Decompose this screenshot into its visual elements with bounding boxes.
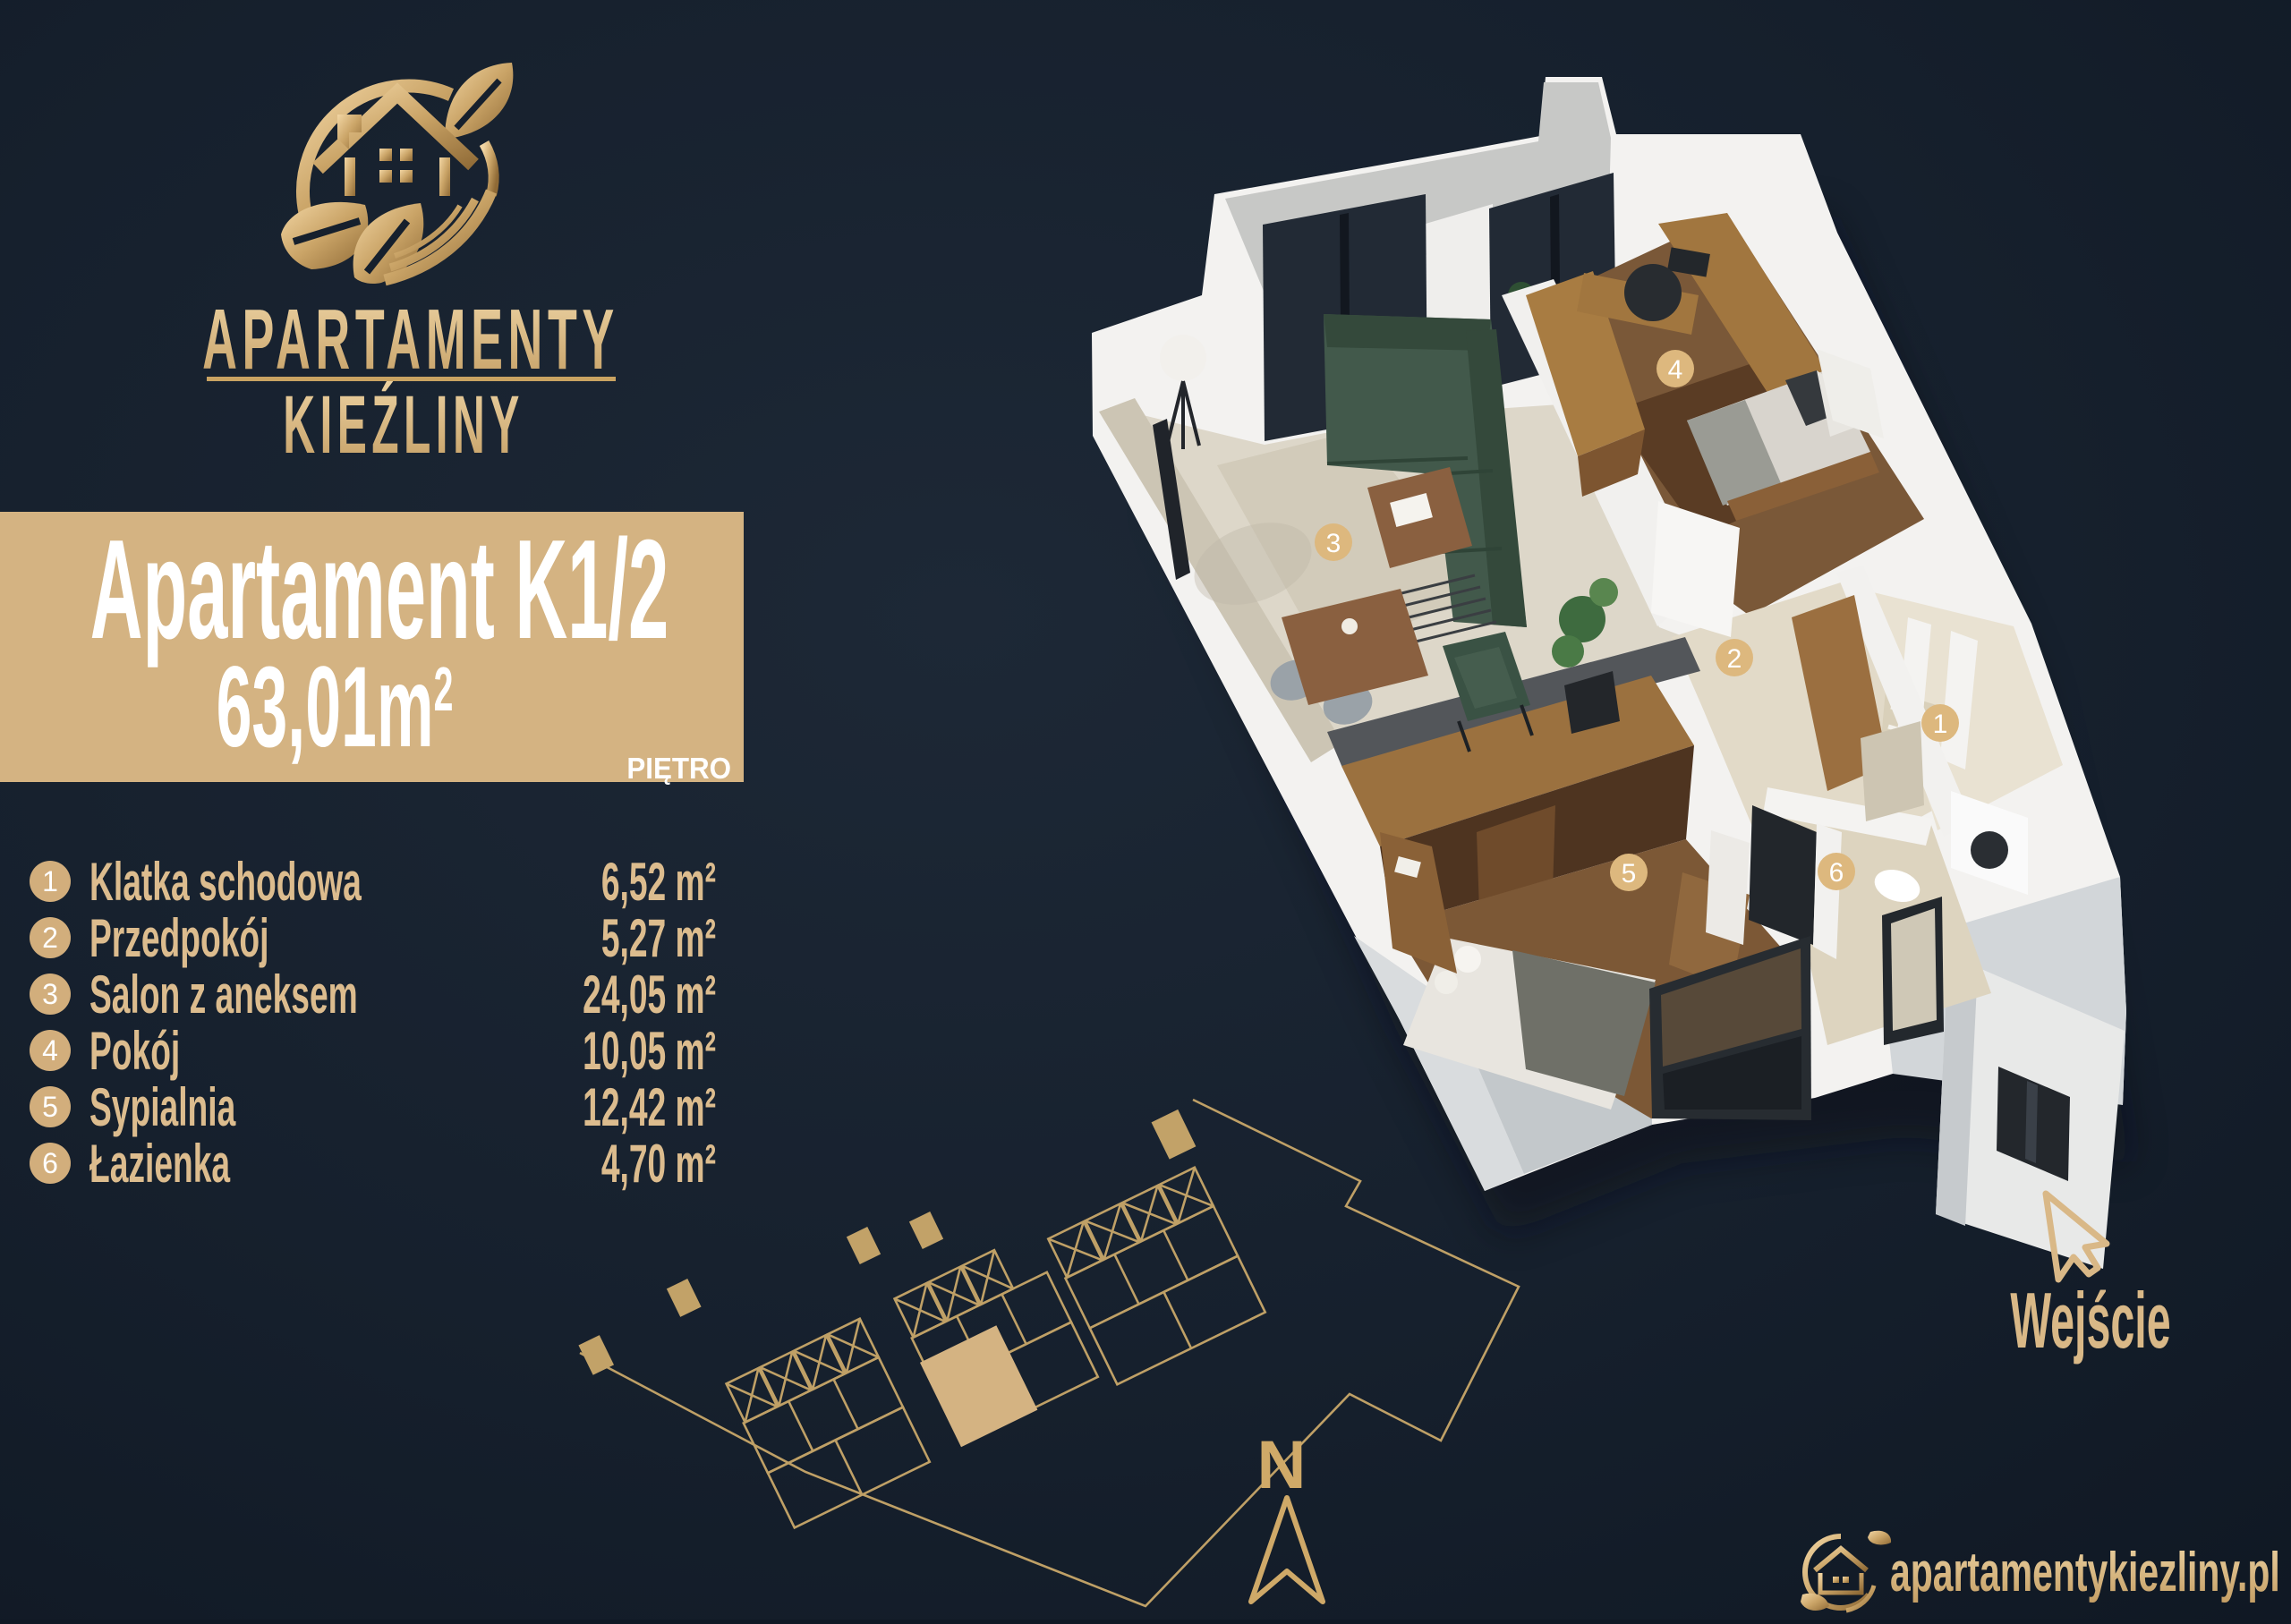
svg-text:N: N	[1257, 1427, 1307, 1503]
svg-text:5: 5	[1622, 859, 1637, 889]
svg-text:Wejście: Wejście	[2010, 1278, 2170, 1365]
svg-text:apartamentykiezliny.pl: apartamentykiezliny.pl	[1890, 1542, 2280, 1604]
svg-text:1: 1	[42, 865, 58, 897]
svg-text:5,27 m²: 5,27 m²	[601, 908, 716, 968]
svg-text:6: 6	[42, 1147, 58, 1179]
svg-text:Salon z aneksem: Salon z aneksem	[89, 965, 358, 1025]
svg-text:24,05 m²: 24,05 m²	[583, 965, 716, 1025]
svg-text:4: 4	[42, 1034, 58, 1067]
svg-text:PIĘTRO: PIĘTRO	[626, 752, 731, 785]
svg-text:Sypialnia: Sypialnia	[89, 1077, 236, 1137]
svg-text:2: 2	[1727, 644, 1742, 674]
svg-text:3: 3	[42, 978, 58, 1010]
svg-text:APARTAMENTY: APARTAMENTY	[202, 293, 619, 387]
svg-text:Klatka schodowa: Klatka schodowa	[89, 852, 362, 912]
svg-text:5: 5	[42, 1091, 58, 1123]
svg-text:4,70 m²: 4,70 m²	[601, 1134, 716, 1194]
svg-text:3: 3	[1326, 529, 1341, 558]
svg-text:Łazienka: Łazienka	[89, 1134, 231, 1194]
svg-text:4: 4	[1668, 355, 1683, 385]
svg-text:6: 6	[1829, 858, 1844, 888]
svg-text:2: 2	[42, 922, 58, 954]
svg-text:12,42 m²: 12,42 m²	[583, 1077, 716, 1137]
svg-text:KIEŹLINY: KIEŹLINY	[283, 378, 524, 471]
svg-text:6,52 m²: 6,52 m²	[601, 852, 716, 912]
svg-text:63,01m2: 63,01m2	[217, 642, 454, 770]
svg-text:10,05 m²: 10,05 m²	[583, 1021, 716, 1081]
svg-text:Pokój: Pokój	[89, 1021, 180, 1081]
svg-text:Przedpokój: Przedpokój	[89, 908, 268, 968]
svg-text:1: 1	[1933, 710, 1948, 739]
